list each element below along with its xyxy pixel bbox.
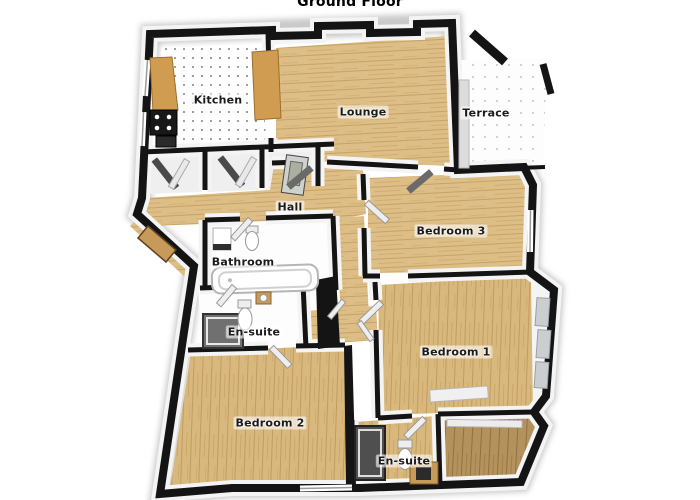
room-label-bathroom: Bathroom <box>210 256 277 269</box>
room-label-lounge: Lounge <box>338 106 389 119</box>
dressing-shelf <box>447 419 522 427</box>
stove <box>150 110 177 135</box>
room-label-bedroom1: Bedroom 1 <box>419 346 492 359</box>
room-label-ensuite1: En-suite <box>226 326 282 339</box>
room-label-terrace: Terrace <box>460 107 511 120</box>
room-label-kitchen: Kitchen <box>192 94 245 107</box>
ensuite1-toilet-tank <box>238 300 251 308</box>
floorplan-page: { "title": "Ground Floor", "floorplan": … <box>0 0 700 500</box>
bathroom-toilet <box>246 232 259 251</box>
page-title: Ground Floor <box>297 0 403 10</box>
room-label-ensuite2: En-suite <box>376 455 432 468</box>
terrace-wall-top <box>472 33 505 62</box>
bay-window-panes <box>534 298 551 389</box>
kitchen-cabinet-tall <box>252 50 281 120</box>
room-label-bedroom3: Bedroom 3 <box>414 225 487 238</box>
oven <box>156 136 176 147</box>
terrace-glazing <box>459 80 469 168</box>
floorplan-image: Ground Floor Kitchen Lounge Terrace Hall… <box>0 0 700 500</box>
room-label-hall: Hall <box>276 201 305 214</box>
bedroom3-floor <box>368 172 529 273</box>
floorplan-svg <box>0 0 700 500</box>
room-label-bedroom2: Bedroom 2 <box>233 417 306 430</box>
ensuite2-toilet-tank <box>398 440 412 448</box>
